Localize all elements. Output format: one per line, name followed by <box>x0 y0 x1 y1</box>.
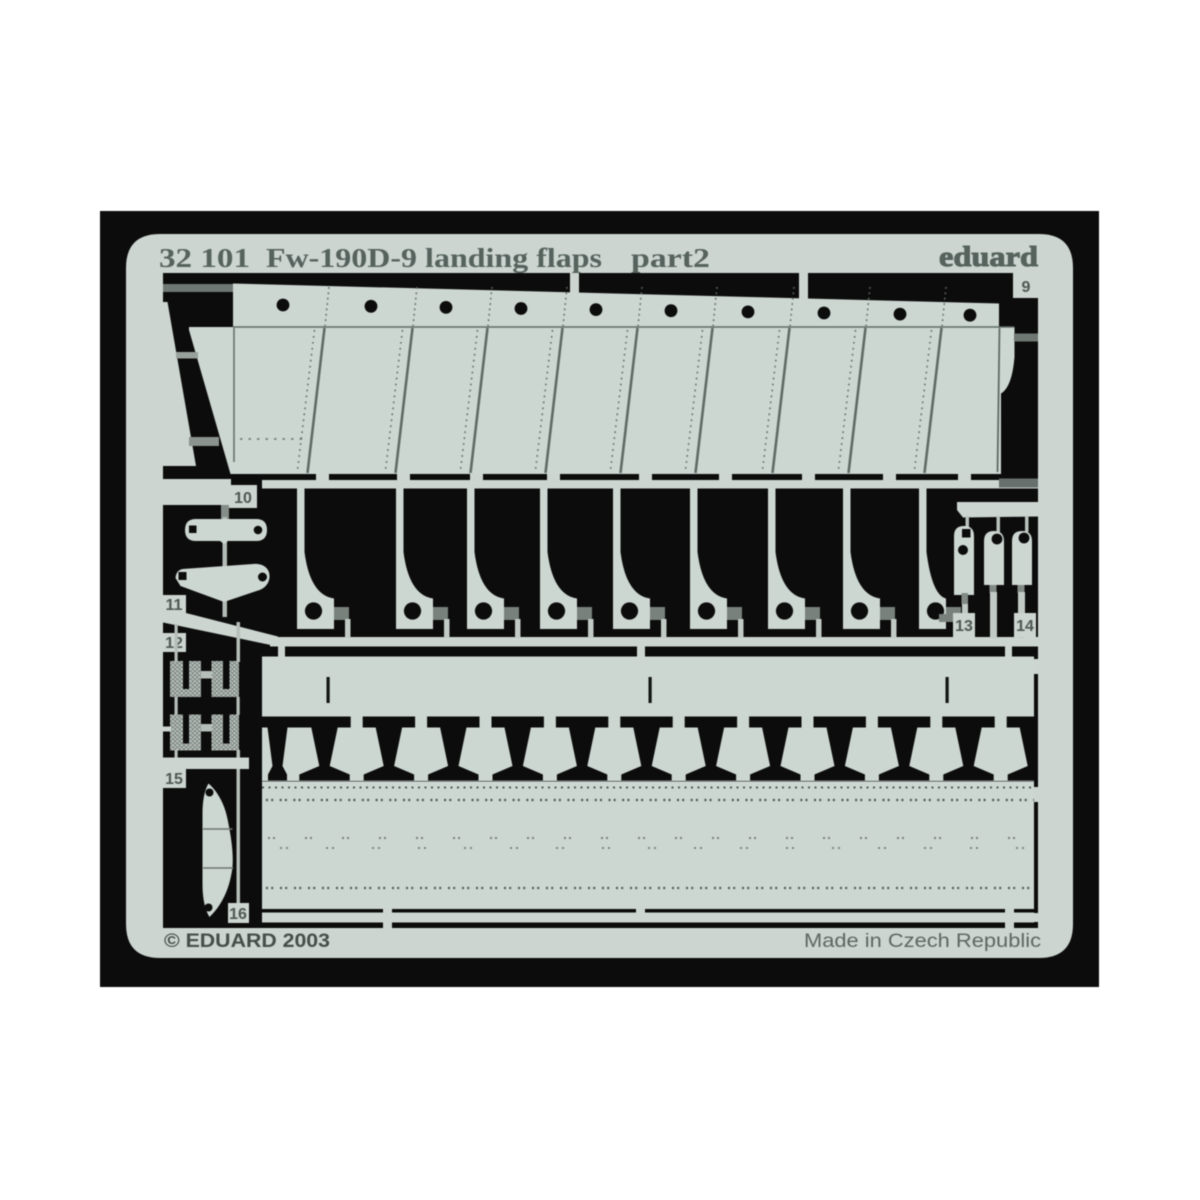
svg-text:9: 9 <box>1022 279 1031 296</box>
svg-text:eduard: eduard <box>939 241 1038 273</box>
svg-text:10: 10 <box>234 490 252 507</box>
svg-text:Fw-190D-9 landing flaps: Fw-190D-9 landing flaps <box>266 243 602 273</box>
svg-text:16: 16 <box>229 906 247 923</box>
svg-text:13: 13 <box>955 618 973 635</box>
svg-text:12: 12 <box>165 635 183 652</box>
svg-text:Made in Czech Republic: Made in Czech Republic <box>804 930 1041 952</box>
svg-text:32 101: 32 101 <box>159 243 250 273</box>
svg-text:15: 15 <box>165 771 183 788</box>
svg-text:© EDUARD 2003: © EDUARD 2003 <box>164 930 330 952</box>
svg-text:part2: part2 <box>631 243 710 273</box>
svg-text:14: 14 <box>1016 618 1034 635</box>
